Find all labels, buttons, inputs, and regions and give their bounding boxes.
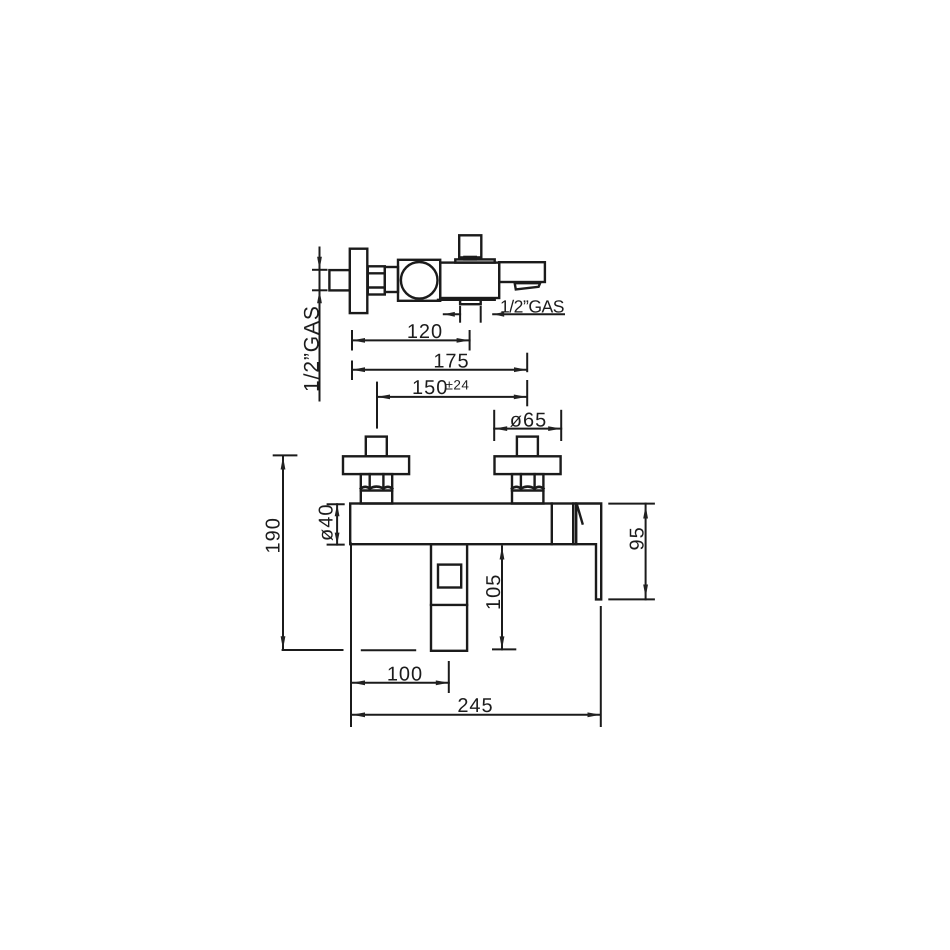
svg-text:1/2”GAS: 1/2”GAS [301,305,324,392]
svg-text:95: 95 [627,526,649,550]
svg-text:ø40: ø40 [316,504,338,541]
svg-text:1/2”GAS: 1/2”GAS [500,297,564,317]
svg-text:±24: ±24 [446,378,470,393]
svg-text:245: 245 [457,695,493,717]
svg-text:190: 190 [263,517,285,553]
svg-text:105: 105 [483,574,505,610]
svg-text:ø65: ø65 [510,410,547,432]
svg-text:175: 175 [433,351,469,373]
svg-text:120: 120 [407,321,443,343]
svg-text:150: 150 [412,377,448,399]
svg-text:100: 100 [387,664,423,686]
